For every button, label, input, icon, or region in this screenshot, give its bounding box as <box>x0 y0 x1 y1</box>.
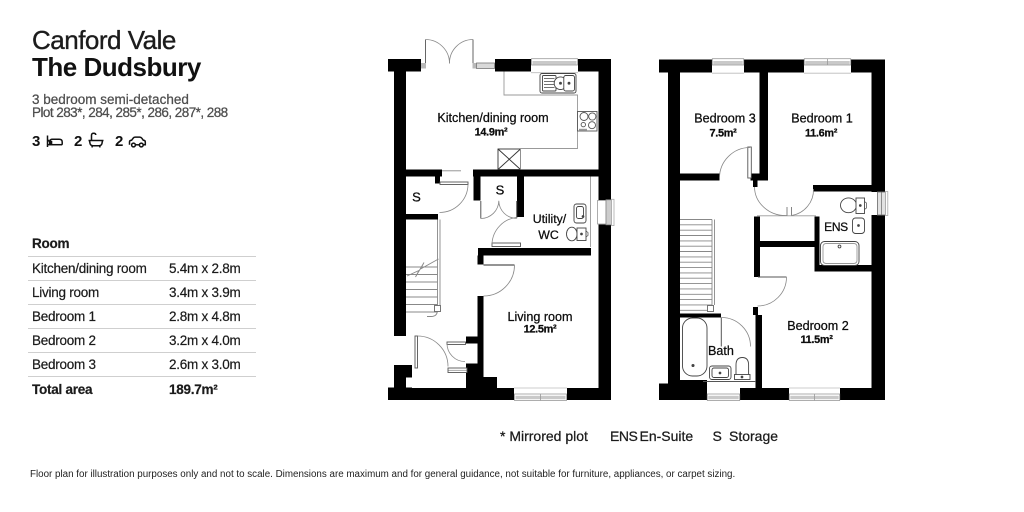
svg-text:WC: WC <box>538 228 559 242</box>
svg-text:14.9m²: 14.9m² <box>475 127 508 139</box>
svg-text:Kitchen/dining room: Kitchen/dining room <box>437 111 548 125</box>
svg-text:Bedroom 3: Bedroom 3 <box>694 112 756 126</box>
svg-text:Bath: Bath <box>708 344 734 358</box>
svg-text:S: S <box>412 190 421 205</box>
svg-text:11.6m²: 11.6m² <box>805 127 838 139</box>
svg-text:Utility/: Utility/ <box>533 212 567 226</box>
svg-text:Living room: Living room <box>507 310 572 324</box>
svg-text:12.5m²: 12.5m² <box>524 324 557 336</box>
svg-text:Bedroom 2: Bedroom 2 <box>787 319 849 333</box>
svg-text:S: S <box>496 183 505 198</box>
svg-text:7.5m²: 7.5m² <box>710 127 738 139</box>
svg-text:ENS: ENS <box>824 220 848 234</box>
svg-text:11.5m²: 11.5m² <box>800 334 833 346</box>
svg-text:Bedroom 1: Bedroom 1 <box>791 112 853 126</box>
